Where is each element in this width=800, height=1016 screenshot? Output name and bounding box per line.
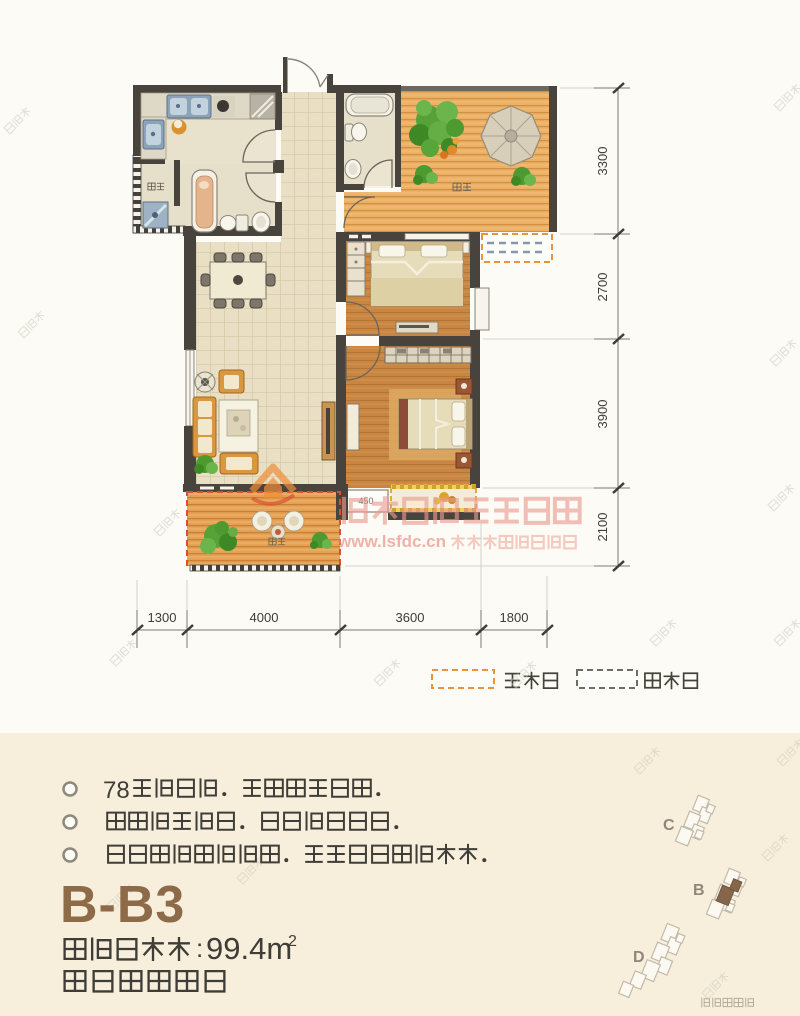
svg-text:2: 2 xyxy=(288,933,297,950)
svg-text:2100: 2100 xyxy=(595,513,610,542)
svg-text:99.4m: 99.4m xyxy=(206,931,292,966)
svg-text:3300: 3300 xyxy=(595,147,610,176)
svg-text:B-B3: B-B3 xyxy=(60,876,185,934)
svg-text:www.lsfdc.cn: www.lsfdc.cn xyxy=(337,532,446,551)
svg-text:C: C xyxy=(663,817,675,834)
svg-text:3900: 3900 xyxy=(595,400,610,429)
svg-text:D: D xyxy=(633,949,645,966)
svg-text:3600: 3600 xyxy=(396,610,425,625)
svg-text:2700: 2700 xyxy=(595,273,610,302)
svg-text:B: B xyxy=(693,882,705,899)
svg-text:4000: 4000 xyxy=(250,610,279,625)
svg-text:1800: 1800 xyxy=(500,610,529,625)
svg-text::: : xyxy=(196,933,203,963)
svg-text:78: 78 xyxy=(103,777,130,804)
svg-text:1300: 1300 xyxy=(148,610,177,625)
